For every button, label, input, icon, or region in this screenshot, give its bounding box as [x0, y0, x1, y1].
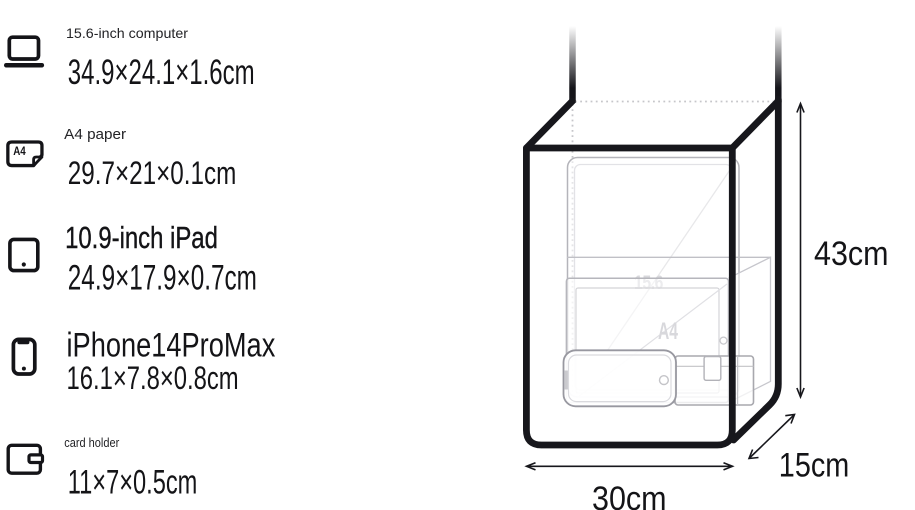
- svg-text:43cm: 43cm: [814, 235, 889, 273]
- svg-text:A4: A4: [658, 318, 678, 345]
- svg-text:30cm: 30cm: [592, 480, 667, 510]
- svg-text:15cm: 15cm: [779, 446, 850, 484]
